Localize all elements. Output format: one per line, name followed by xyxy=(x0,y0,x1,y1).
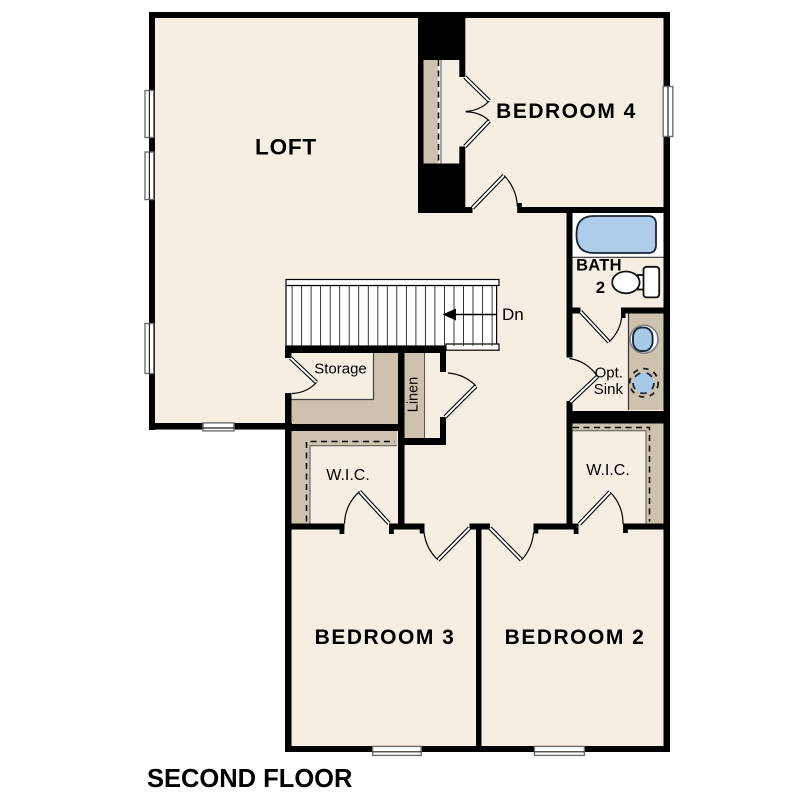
svg-text:BEDROOM 4: BEDROOM 4 xyxy=(496,100,637,123)
svg-text:Storage: Storage xyxy=(314,361,367,378)
svg-text:Dn: Dn xyxy=(502,305,524,324)
svg-text:SECOND FLOOR: SECOND FLOOR xyxy=(147,765,352,793)
svg-text:LOFT: LOFT xyxy=(255,135,317,160)
svg-text:BEDROOM 3: BEDROOM 3 xyxy=(315,626,456,649)
svg-text:2: 2 xyxy=(596,279,605,297)
svg-text:Opt.: Opt. xyxy=(595,365,623,382)
svg-text:Linen: Linen xyxy=(406,377,422,412)
svg-text:Sink: Sink xyxy=(594,381,624,398)
svg-text:BATH: BATH xyxy=(576,256,622,274)
svg-text:BEDROOM 2: BEDROOM 2 xyxy=(505,626,646,649)
svg-text:W.I.C.: W.I.C. xyxy=(586,462,630,479)
svg-text:W.I.C.: W.I.C. xyxy=(326,467,370,484)
